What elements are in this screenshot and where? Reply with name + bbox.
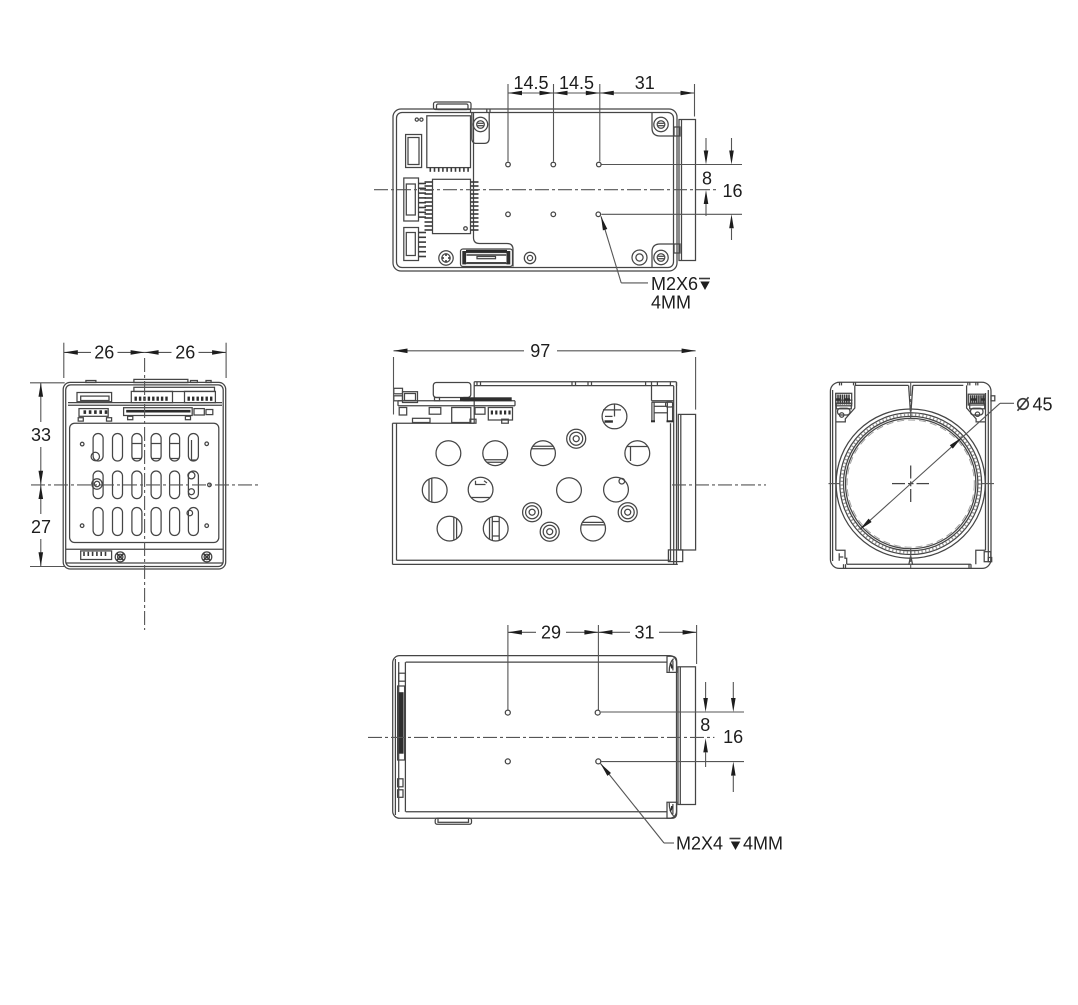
svg-text:97: 97	[530, 341, 550, 361]
svg-text:14.5: 14.5	[513, 73, 548, 93]
svg-text:31: 31	[635, 73, 655, 93]
svg-text:33: 33	[31, 425, 51, 445]
svg-text:4MM: 4MM	[651, 293, 691, 313]
svg-text:8: 8	[700, 715, 710, 735]
svg-text:16: 16	[723, 727, 743, 747]
svg-text:29: 29	[541, 623, 561, 643]
svg-text:31: 31	[634, 623, 654, 643]
svg-text:26: 26	[175, 343, 195, 363]
svg-text:26: 26	[94, 343, 114, 363]
svg-text:M2X4: M2X4	[676, 834, 723, 854]
svg-text:4MM: 4MM	[743, 834, 783, 854]
svg-text:45: 45	[1033, 395, 1053, 415]
svg-text:M2X6: M2X6	[651, 274, 698, 294]
svg-text:16: 16	[722, 181, 742, 201]
svg-text:8: 8	[702, 169, 712, 189]
svg-text:14.5: 14.5	[559, 73, 594, 93]
svg-text:27: 27	[31, 517, 51, 537]
